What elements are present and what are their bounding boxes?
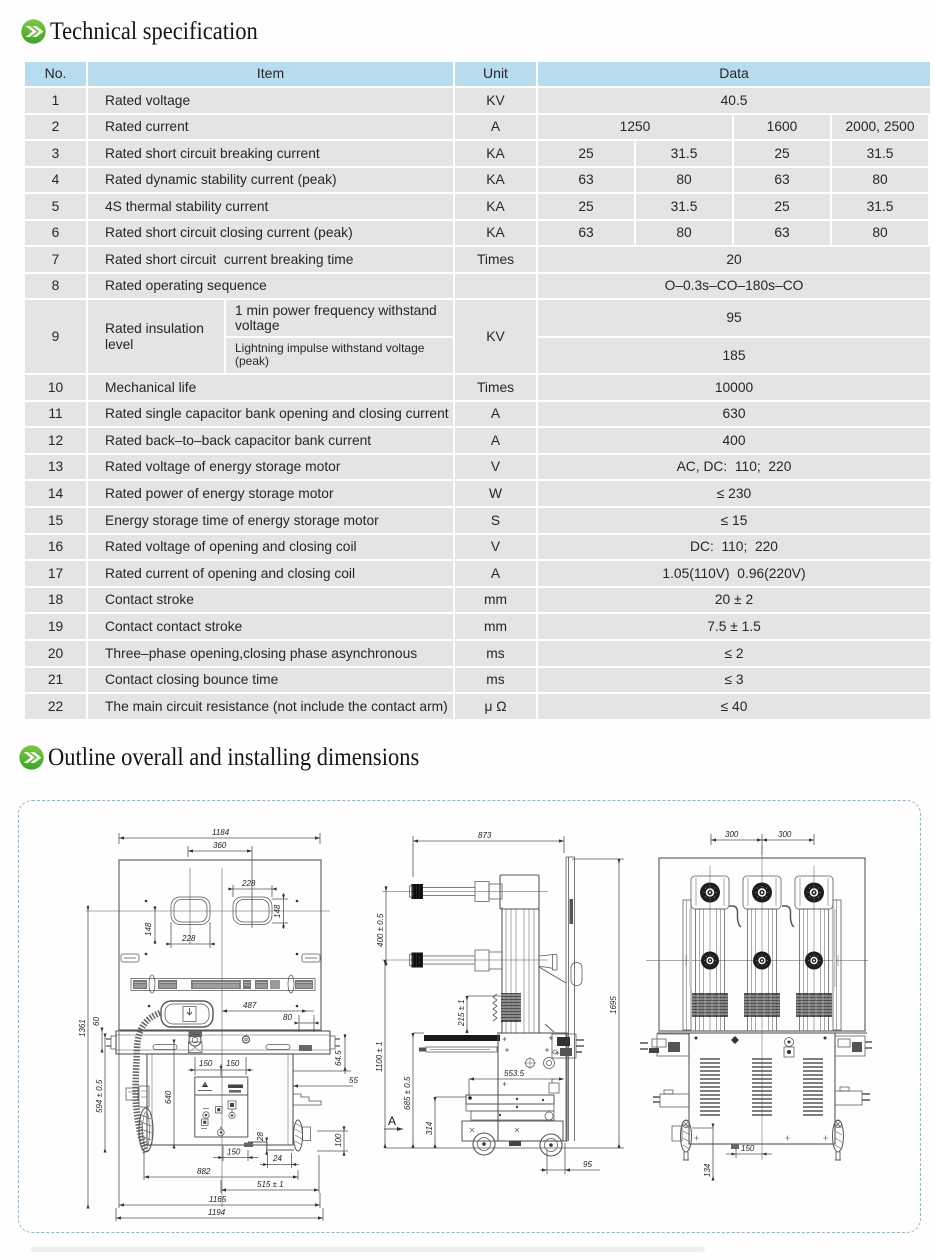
svg-text:1165: 1165 xyxy=(209,1195,227,1204)
svg-text:60: 60 xyxy=(92,1017,101,1026)
svg-text:100: 100 xyxy=(334,1133,343,1147)
svg-text:594 ± 0.5: 594 ± 0.5 xyxy=(95,1079,104,1113)
svg-text:640: 640 xyxy=(164,1090,173,1104)
svg-text:685 ± 0.5: 685 ± 0.5 xyxy=(403,1076,412,1110)
svg-text:1100 ± 1: 1100 ± 1 xyxy=(375,1042,384,1073)
svg-text:A: A xyxy=(388,1114,396,1128)
svg-text:300: 300 xyxy=(725,830,739,839)
svg-text:1184: 1184 xyxy=(212,828,230,837)
svg-text:55: 55 xyxy=(349,1076,358,1085)
svg-text:150: 150 xyxy=(741,1144,755,1153)
svg-text:1695: 1695 xyxy=(609,996,618,1014)
svg-text:148: 148 xyxy=(273,904,282,918)
svg-text:215 ± 1: 215 ± 1 xyxy=(457,999,466,1027)
svg-text:134: 134 xyxy=(703,1163,712,1177)
svg-text:80: 80 xyxy=(283,1013,292,1022)
svg-text:228: 228 xyxy=(181,934,196,943)
svg-text:148: 148 xyxy=(144,922,153,936)
svg-text:150: 150 xyxy=(226,1059,240,1068)
svg-text:64.5: 64.5 xyxy=(334,1050,343,1066)
svg-text:1194: 1194 xyxy=(208,1208,226,1217)
svg-text:487: 487 xyxy=(243,1001,257,1010)
svg-text:515 ± 1: 515 ± 1 xyxy=(257,1180,284,1189)
svg-text:882: 882 xyxy=(197,1167,211,1176)
svg-text:150: 150 xyxy=(199,1059,213,1068)
svg-text:873: 873 xyxy=(478,831,492,840)
svg-text:95: 95 xyxy=(583,1160,592,1169)
svg-text:300: 300 xyxy=(778,830,792,839)
svg-text:28: 28 xyxy=(256,1132,265,1142)
svg-text:553.5: 553.5 xyxy=(504,1069,525,1078)
svg-text:314: 314 xyxy=(425,1121,434,1135)
svg-text:1361: 1361 xyxy=(78,1019,87,1037)
svg-text:24: 24 xyxy=(272,1154,282,1163)
svg-text:400 ± 0.5: 400 ± 0.5 xyxy=(376,913,385,947)
svg-text:228: 228 xyxy=(241,879,256,888)
svg-text:150: 150 xyxy=(227,1148,241,1157)
svg-text:360: 360 xyxy=(213,841,227,850)
